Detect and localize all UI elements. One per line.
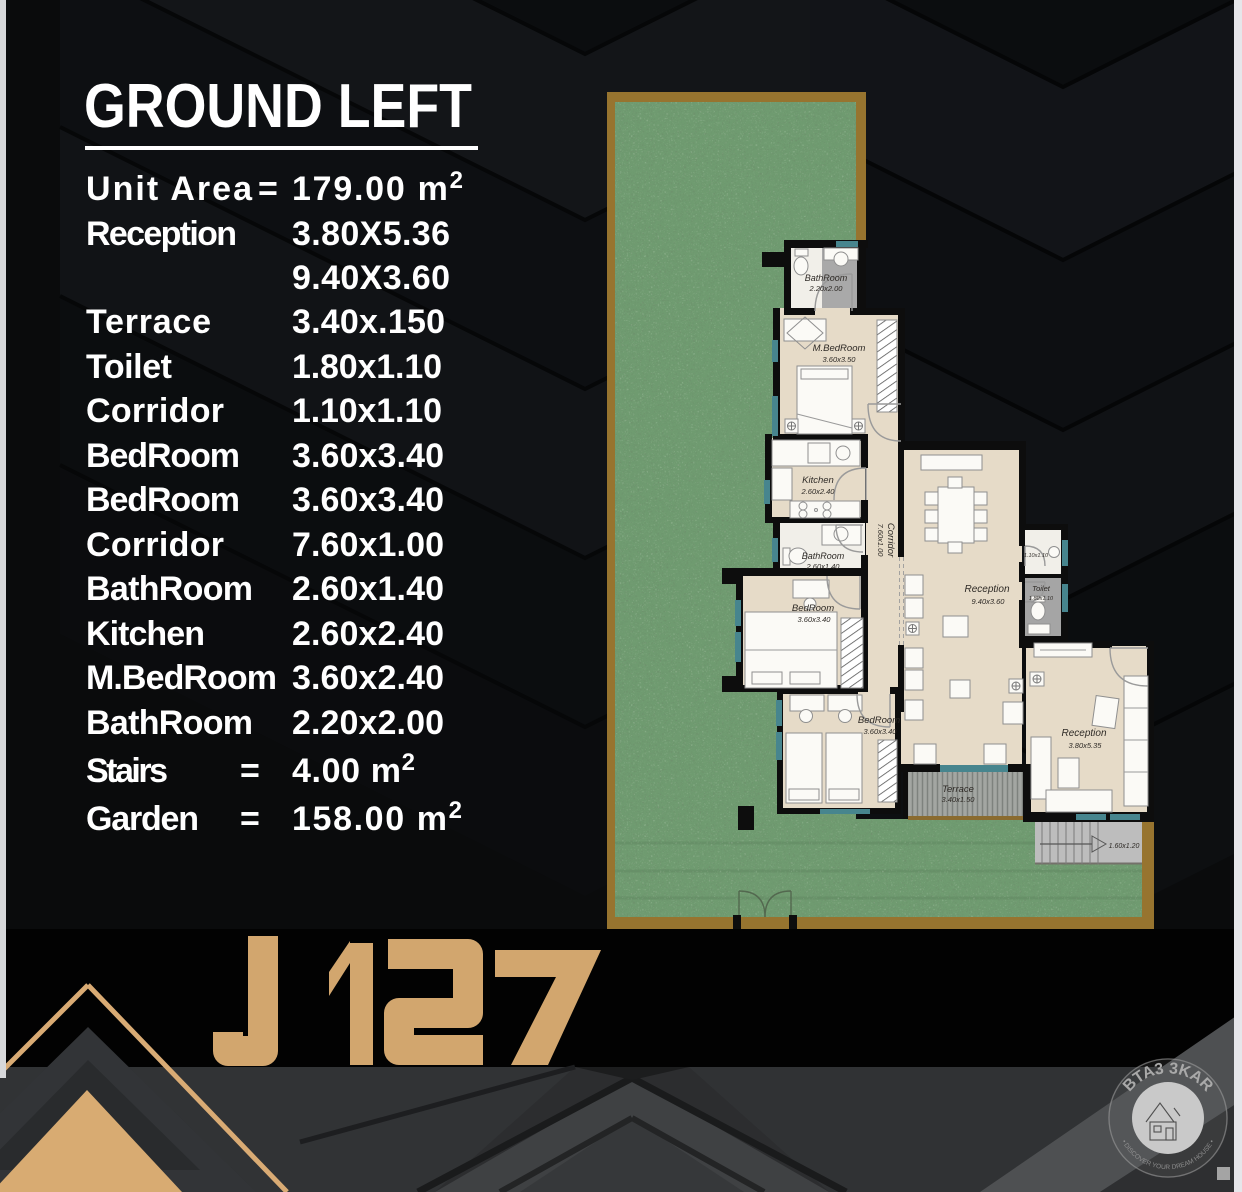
svg-text:2.60x2.40: 2.60x2.40 xyxy=(292,615,444,653)
svg-text:3.60x2.40: 3.60x2.40 xyxy=(292,659,444,697)
svg-text:Reception: Reception xyxy=(86,215,237,253)
svg-text:3.60x3.40: 3.60x3.40 xyxy=(798,615,832,624)
svg-text:Garden: Garden xyxy=(86,800,199,838)
svg-text:Terrace: Terrace xyxy=(86,303,211,341)
svg-text:1.80x1.10: 1.80x1.10 xyxy=(1029,596,1054,602)
svg-text:GROUND LEFT: GROUND LEFT xyxy=(84,72,472,141)
svg-text:BedRoom: BedRoom xyxy=(86,481,240,519)
svg-text:9.40x3.60: 9.40x3.60 xyxy=(972,597,1006,606)
svg-text:Toilet: Toilet xyxy=(86,348,172,386)
svg-text:Reception: Reception xyxy=(1061,728,1106,739)
svg-text:2.60x1.40: 2.60x1.40 xyxy=(806,562,841,571)
svg-text:Terrace: Terrace xyxy=(942,784,974,795)
svg-text:Corridor: Corridor xyxy=(885,523,896,558)
svg-text:3.40x.150: 3.40x.150 xyxy=(292,303,445,341)
svg-text:BedRoom: BedRoom xyxy=(792,603,834,614)
svg-text:BathRoom: BathRoom xyxy=(86,570,253,608)
svg-text:Corridor: Corridor xyxy=(86,392,224,430)
svg-text:Kitchen: Kitchen xyxy=(86,615,205,653)
svg-text:3.60x3.40: 3.60x3.40 xyxy=(292,437,444,475)
svg-text:9.40X3.60: 9.40X3.60 xyxy=(292,259,450,297)
svg-text:158.00 m2: 158.00 m2 xyxy=(292,797,462,838)
svg-text:1.10x1.10: 1.10x1.10 xyxy=(292,392,442,430)
svg-text:Toilet: Toilet xyxy=(1032,584,1051,593)
svg-text:7.60x1.00: 7.60x1.00 xyxy=(292,526,444,564)
svg-text:1.80x1.10: 1.80x1.10 xyxy=(292,348,442,386)
svg-text:Reception: Reception xyxy=(964,584,1009,595)
svg-text:3.80X5.36: 3.80X5.36 xyxy=(292,215,450,253)
svg-text:7.60x1.00: 7.60x1.00 xyxy=(876,524,885,558)
svg-text:3.60x3.50: 3.60x3.50 xyxy=(823,355,857,364)
svg-text:Stairs: Stairs xyxy=(86,752,168,790)
svg-text:Corridor: Corridor xyxy=(86,526,224,564)
svg-text:3.60x3.40: 3.60x3.40 xyxy=(292,481,444,519)
svg-text:2.60x2.40: 2.60x2.40 xyxy=(801,487,836,496)
svg-text:=: = xyxy=(240,800,260,838)
svg-text:3.40x1.50: 3.40x1.50 xyxy=(942,795,976,804)
svg-text:2.20x2.00: 2.20x2.00 xyxy=(809,284,844,293)
svg-text:3.60x3.40: 3.60x3.40 xyxy=(864,727,898,736)
svg-text:4.00 m2: 4.00 m2 xyxy=(292,749,415,790)
svg-text:M.BedRoom: M.BedRoom xyxy=(813,343,866,354)
svg-text:BathRoom: BathRoom xyxy=(805,273,848,283)
svg-text:1.10x1.10: 1.10x1.10 xyxy=(1024,553,1049,559)
svg-text:M.BedRoom: M.BedRoom xyxy=(86,659,277,697)
svg-text:Kitchen: Kitchen xyxy=(802,475,834,486)
svg-text:BedRoom: BedRoom xyxy=(86,437,240,475)
svg-text:2.20x2.00: 2.20x2.00 xyxy=(292,704,444,742)
svg-text:1.60x1.20: 1.60x1.20 xyxy=(1109,843,1140,850)
svg-text:=: = xyxy=(258,170,278,208)
svg-text:3.80x5.35: 3.80x5.35 xyxy=(1069,741,1103,750)
svg-text:179.00 m2: 179.00 m2 xyxy=(292,167,463,208)
svg-text:=: = xyxy=(240,752,260,790)
svg-text:2.60x1.40: 2.60x1.40 xyxy=(292,570,444,608)
svg-text:BathRoom: BathRoom xyxy=(802,551,845,561)
svg-text:BedRoom: BedRoom xyxy=(858,715,900,726)
svg-text:BathRoom: BathRoom xyxy=(86,704,253,742)
